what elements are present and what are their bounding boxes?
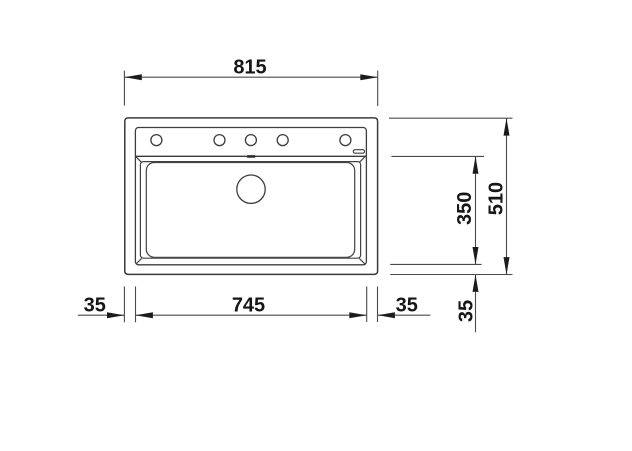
svg-text:350: 350 — [454, 192, 476, 225]
svg-text:35: 35 — [84, 295, 106, 317]
svg-text:815: 815 — [233, 56, 266, 78]
svg-text:745: 745 — [232, 295, 265, 317]
svg-text:35: 35 — [455, 300, 477, 322]
svg-text:35: 35 — [396, 295, 418, 317]
svg-text:510: 510 — [485, 182, 507, 215]
